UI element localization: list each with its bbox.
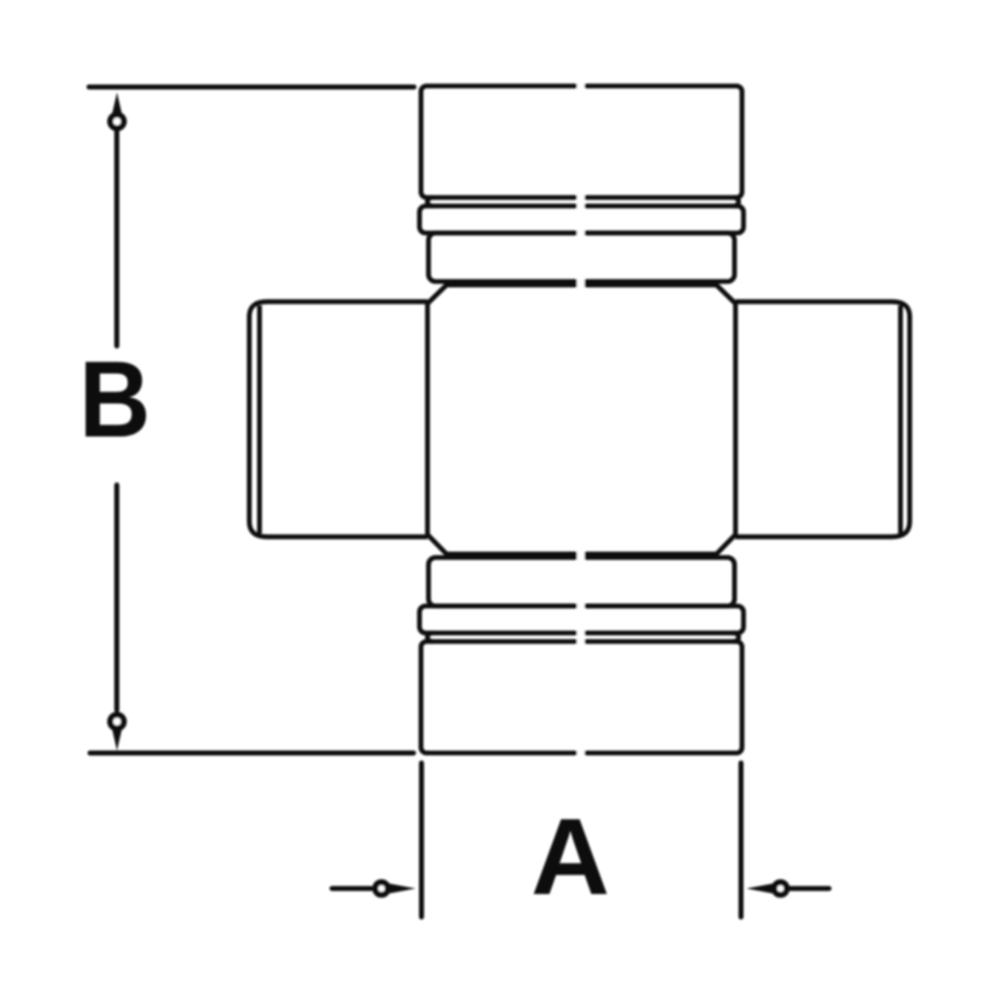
svg-text:A: A <box>531 796 610 918</box>
svg-text:B: B <box>79 339 151 461</box>
